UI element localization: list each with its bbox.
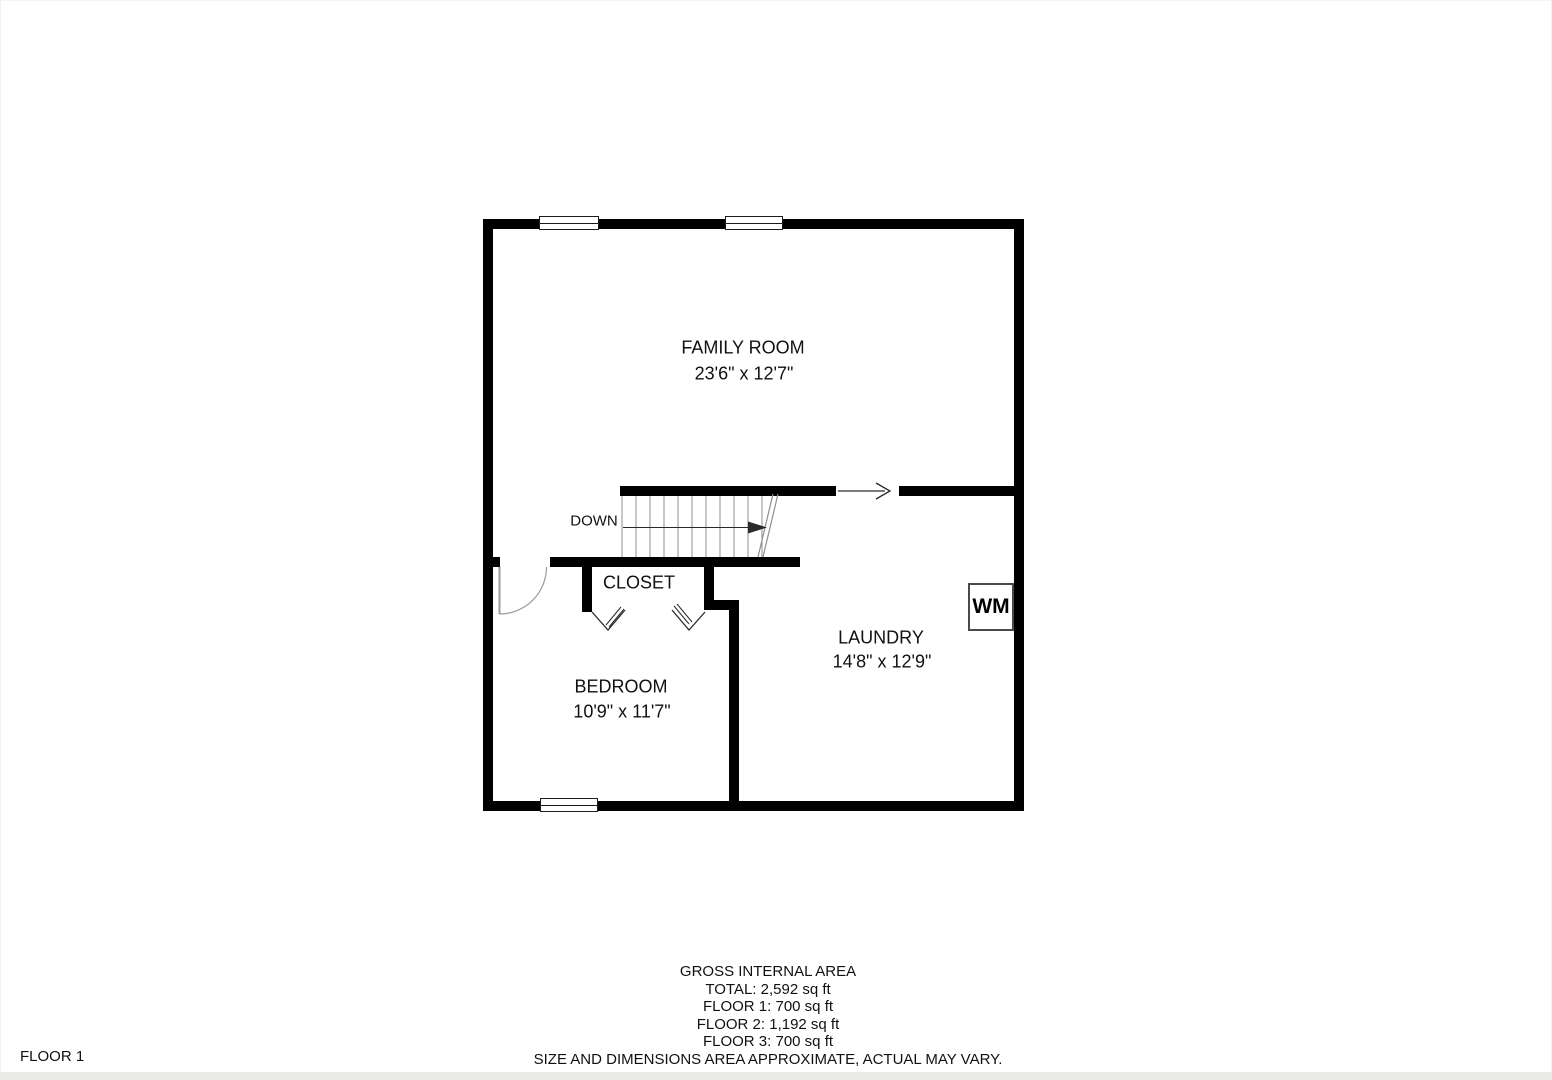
plan-linework <box>0 0 1552 1080</box>
stair-top-wall <box>620 486 836 496</box>
family-room-dimensions: 23'6" x 12'7" <box>695 364 794 385</box>
gross-internal-area-block: GROSS INTERNAL AREA TOTAL: 2,592 sq ft F… <box>534 963 1003 1068</box>
down-label: DOWN <box>570 513 618 530</box>
window-symbol-top-left <box>539 216 599 230</box>
family-room-label: FAMILY ROOM <box>681 338 804 359</box>
bedroom-door-swing-icon <box>500 567 547 614</box>
washing-machine-box: WM <box>968 583 1014 631</box>
window-symbol-bottom <box>540 798 598 812</box>
bottom-edge-strip <box>0 1072 1552 1080</box>
window-symbol-top-right <box>725 216 783 230</box>
washing-machine-label: WM <box>972 595 1009 619</box>
laundry-dimensions: 14'8" x 12'9" <box>833 652 932 673</box>
floor-number-label: FLOOR 1 <box>20 1048 84 1065</box>
bedroom-dimensions: 10'9" x 11'7" <box>573 702 670 723</box>
exterior-wall-right <box>1014 219 1024 811</box>
entry-arrow-icon <box>838 483 890 499</box>
closet-bifold-right-icon <box>672 604 705 630</box>
stair-break-line-icon <box>758 494 778 557</box>
hall-wall-right <box>899 486 1014 496</box>
closet-bifold-left-icon <box>592 607 625 630</box>
footer-floor-3: FLOOR 3: 700 sq ft <box>534 1033 1003 1051</box>
down-arrow-icon <box>623 522 767 534</box>
staircase-treads-icon <box>622 496 762 557</box>
laundry-label: LAUNDRY <box>838 628 924 649</box>
footer-total: TOTAL: 2,592 sq ft <box>534 981 1003 999</box>
floor-plan-page: WM FAMILY ROOM 23'6" x 12'7" CLOSET BEDR… <box>0 0 1552 1080</box>
bedroom-door-jamb <box>491 557 500 567</box>
exterior-wall-left <box>483 219 493 811</box>
bedroom-label: BEDROOM <box>574 677 667 698</box>
closet-stub-left <box>582 557 592 612</box>
closet-label: CLOSET <box>603 573 675 594</box>
bedroom-right-wall <box>729 600 739 811</box>
footer-heading: GROSS INTERNAL AREA <box>534 963 1003 981</box>
footer-floor-2: FLOOR 2: 1,192 sq ft <box>534 1016 1003 1034</box>
footer-disclaimer: SIZE AND DIMENSIONS AREA APPROXIMATE, AC… <box>534 1051 1003 1069</box>
footer-floor-1: FLOOR 1: 700 sq ft <box>534 998 1003 1016</box>
